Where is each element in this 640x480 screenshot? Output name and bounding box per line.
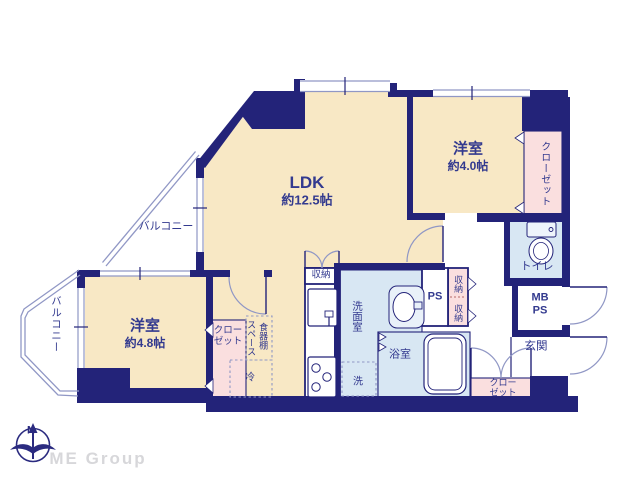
closet-right-label: クローゼット xyxy=(538,141,550,207)
closet-left-label: クロー ゼット xyxy=(214,326,243,348)
ldk-area-label: 約12.5帖 xyxy=(281,194,332,209)
bedroom-left-area-label: 約4.8帖 xyxy=(125,337,166,351)
storage-hall-lower-label: 収納 xyxy=(453,304,463,322)
floorplan-page: LDK 約12.5帖 洋室 約4.0帖 洋室 約4.8帖 バルコニー バルコニー… xyxy=(0,0,640,480)
bedroom-right-label: 洋室 xyxy=(453,140,483,157)
entrance-label: 玄関 xyxy=(525,340,548,353)
vanity-basin xyxy=(393,293,415,322)
washroom-label: 洗面室 xyxy=(351,300,363,332)
floorplan-graphic xyxy=(0,0,640,480)
toilet-label: トイレ xyxy=(521,261,554,274)
bathroom-label: 浴室 xyxy=(389,349,411,362)
front-door-arc xyxy=(570,287,607,324)
logo-text: ME Group xyxy=(49,449,146,469)
storage-hall-upper-label: 収納 xyxy=(453,275,463,293)
stove xyxy=(308,357,336,397)
bathtub xyxy=(424,334,466,394)
meter-box-label: MB PS xyxy=(531,291,548,316)
storage-kitchen-label: 収納 xyxy=(311,271,330,282)
balcony-upper-label: バルコニー xyxy=(139,221,194,234)
pipe-space-label: PS xyxy=(428,291,443,304)
balcony-left-label: バルコニー xyxy=(50,295,62,353)
cupboard-space-label-1: 食器棚 xyxy=(258,323,268,350)
kitchen-sink xyxy=(308,289,337,326)
meter-door-arc xyxy=(570,337,607,374)
refrigerator-label: 冷 xyxy=(245,372,255,384)
compass-north-label: N xyxy=(27,425,35,438)
bedroom-left-label: 洋室 xyxy=(130,317,160,334)
washer-label: 洗 xyxy=(353,376,363,388)
bedroom-right-area-label: 約4.0帖 xyxy=(448,160,489,174)
closet-entrance-label: クロー ゼット xyxy=(489,378,516,399)
ldk-label: LDK xyxy=(290,173,325,193)
toilet-tank xyxy=(527,222,556,237)
cupboard-space-label-2: スペース xyxy=(246,320,256,356)
